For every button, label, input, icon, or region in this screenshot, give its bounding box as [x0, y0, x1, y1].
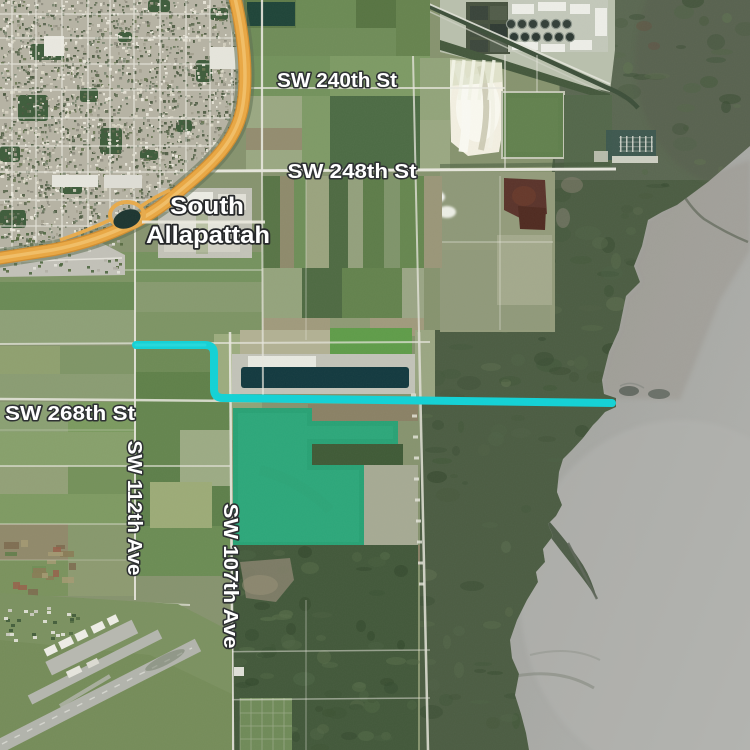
- svg-text:SW 240th St: SW 240th St: [277, 70, 397, 92]
- svg-text:SW 268th St: SW 268th St: [5, 403, 135, 425]
- svg-text:SW 248th St: SW 248th St: [288, 161, 417, 183]
- svg-text:Allapattah: Allapattah: [146, 222, 270, 249]
- svg-text:SW 112th Ave: SW 112th Ave: [123, 441, 145, 576]
- svg-text:South: South: [170, 193, 244, 220]
- svg-text:SW 107th Ave: SW 107th Ave: [219, 504, 241, 649]
